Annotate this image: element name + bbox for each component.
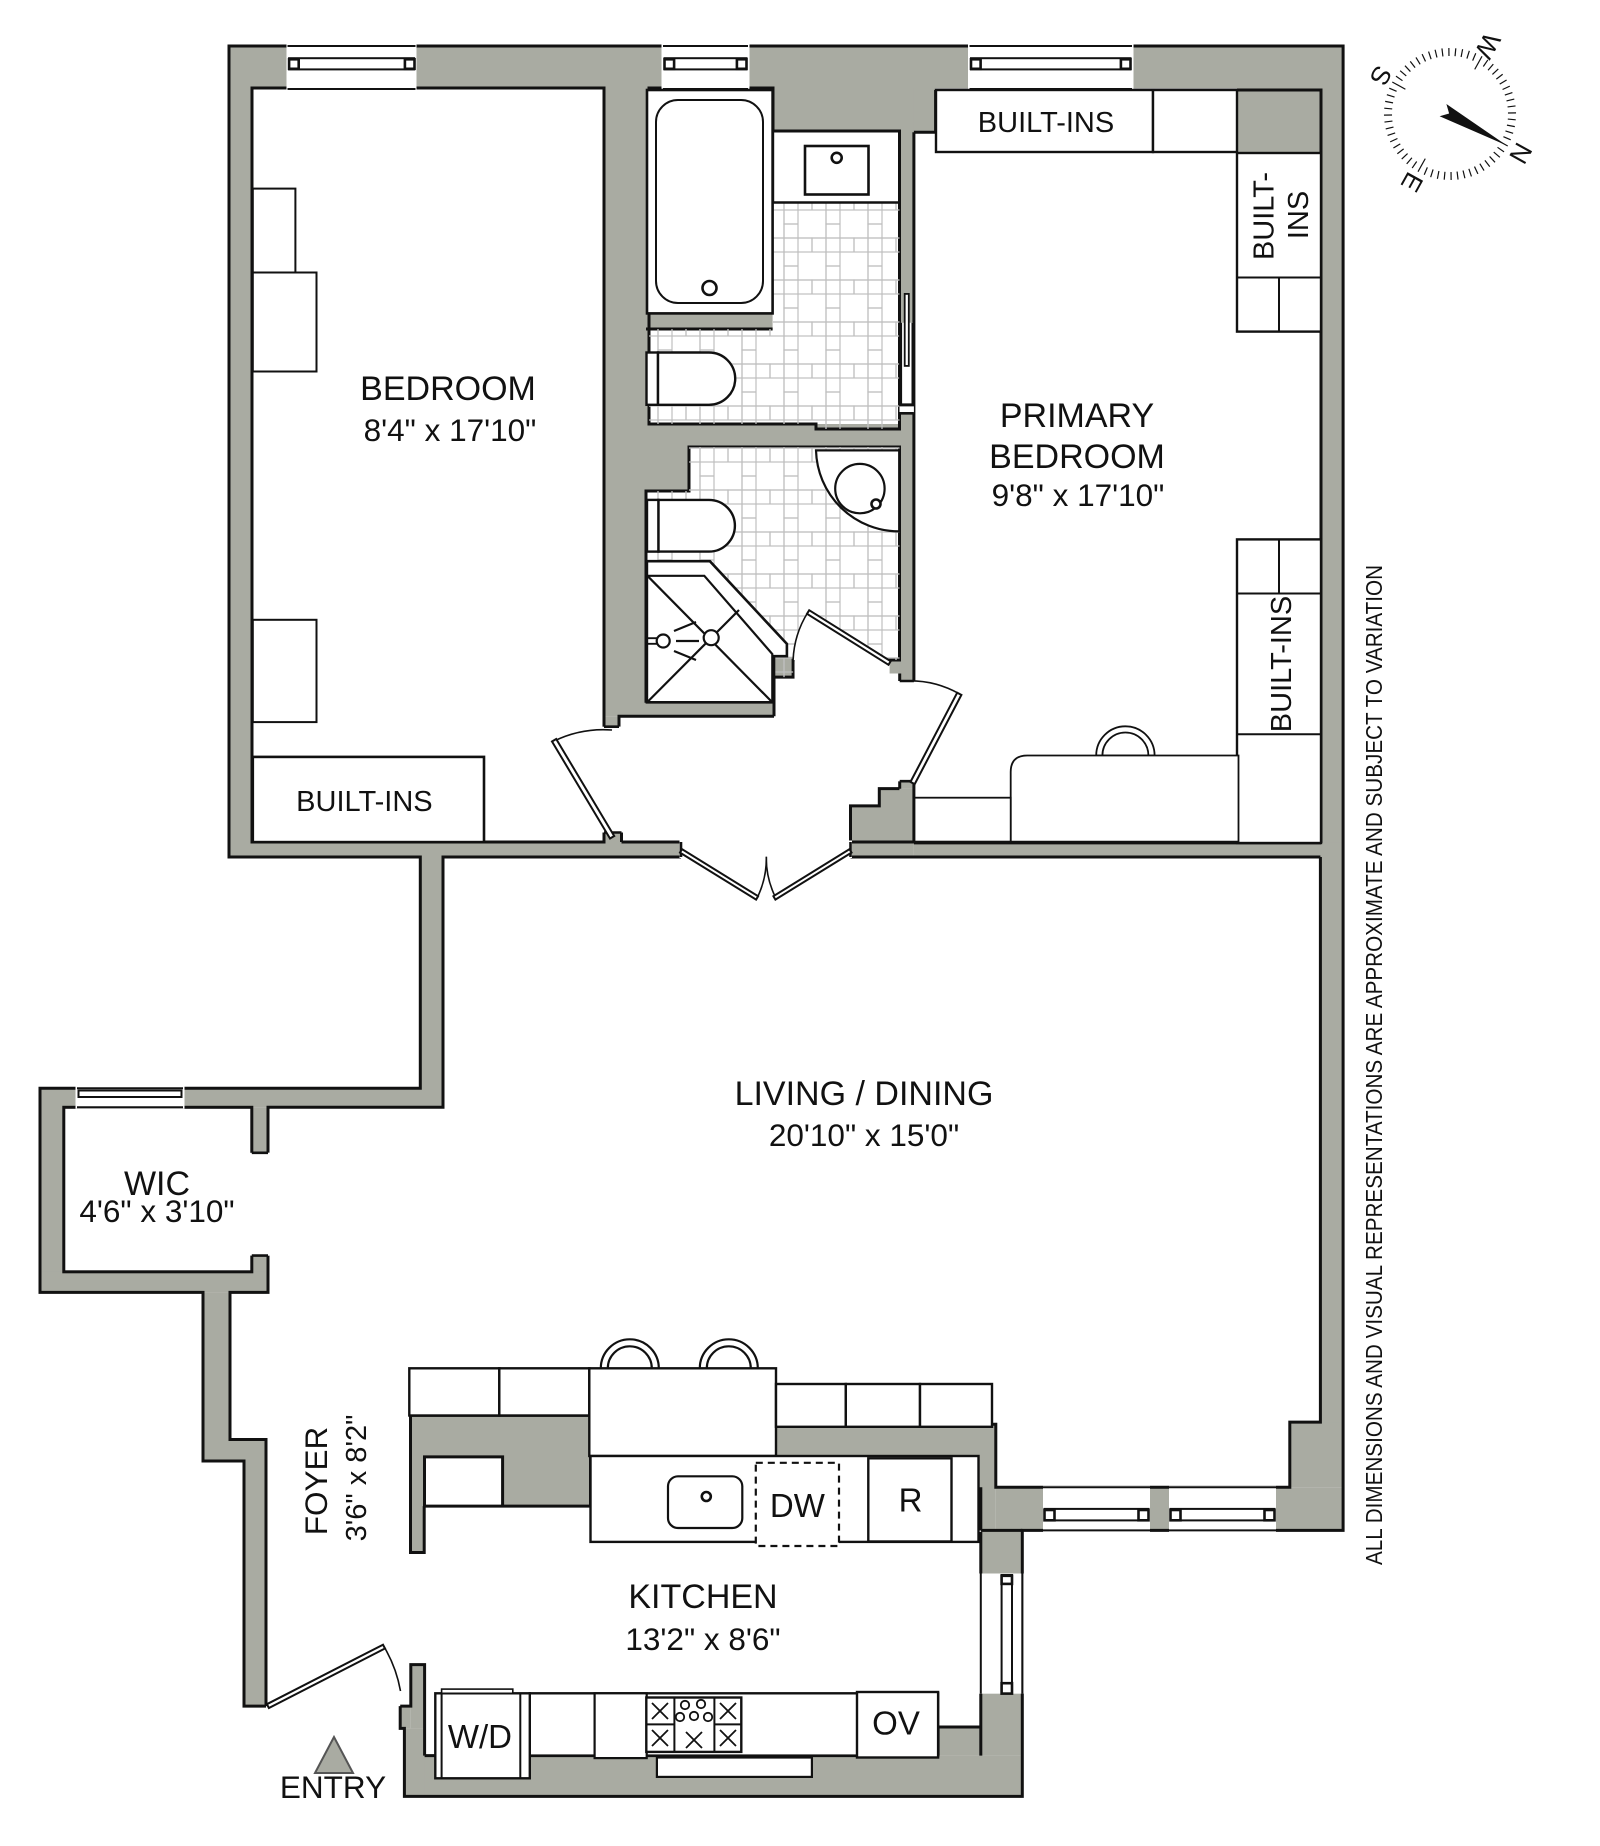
svg-text:4'6" x 3'10": 4'6" x 3'10" — [79, 1193, 234, 1229]
svg-text:BUILT-INS: BUILT-INS — [296, 786, 432, 818]
svg-text:20'10" x 15'0": 20'10" x 15'0" — [769, 1117, 959, 1153]
svg-text:BEDROOM: BEDROOM — [989, 438, 1165, 476]
svg-text:LIVING / DINING: LIVING / DINING — [735, 1075, 994, 1113]
svg-text:BUILT-INS: BUILT-INS — [1266, 596, 1298, 732]
svg-text:FOYER: FOYER — [298, 1427, 334, 1536]
svg-text:8'4" x 17'10": 8'4" x 17'10" — [364, 412, 537, 448]
svg-text:BUILT-INS: BUILT-INS — [978, 107, 1114, 139]
svg-text:DW: DW — [770, 1487, 826, 1524]
svg-text:KITCHEN: KITCHEN — [628, 1578, 777, 1616]
svg-text:ALL DIMENSIONS AND VISUAL REPR: ALL DIMENSIONS AND VISUAL REPRESENTATION… — [1361, 565, 1387, 1565]
svg-text:OV: OV — [872, 1705, 920, 1742]
svg-text:ENTRY: ENTRY — [280, 1769, 386, 1805]
svg-text:3'6" x 8'2": 3'6" x 8'2" — [341, 1415, 373, 1542]
svg-text:9'8" x 17'10": 9'8" x 17'10" — [992, 477, 1165, 513]
svg-text:PRIMARY: PRIMARY — [1000, 397, 1154, 435]
svg-text:INS: INS — [1283, 191, 1315, 239]
svg-text:R: R — [899, 1482, 923, 1519]
svg-text:BUILT-: BUILT- — [1248, 172, 1280, 260]
svg-text:W/D: W/D — [448, 1718, 512, 1755]
svg-text:BEDROOM: BEDROOM — [360, 370, 536, 408]
svg-text:13'2" x 8'6": 13'2" x 8'6" — [625, 1621, 780, 1657]
